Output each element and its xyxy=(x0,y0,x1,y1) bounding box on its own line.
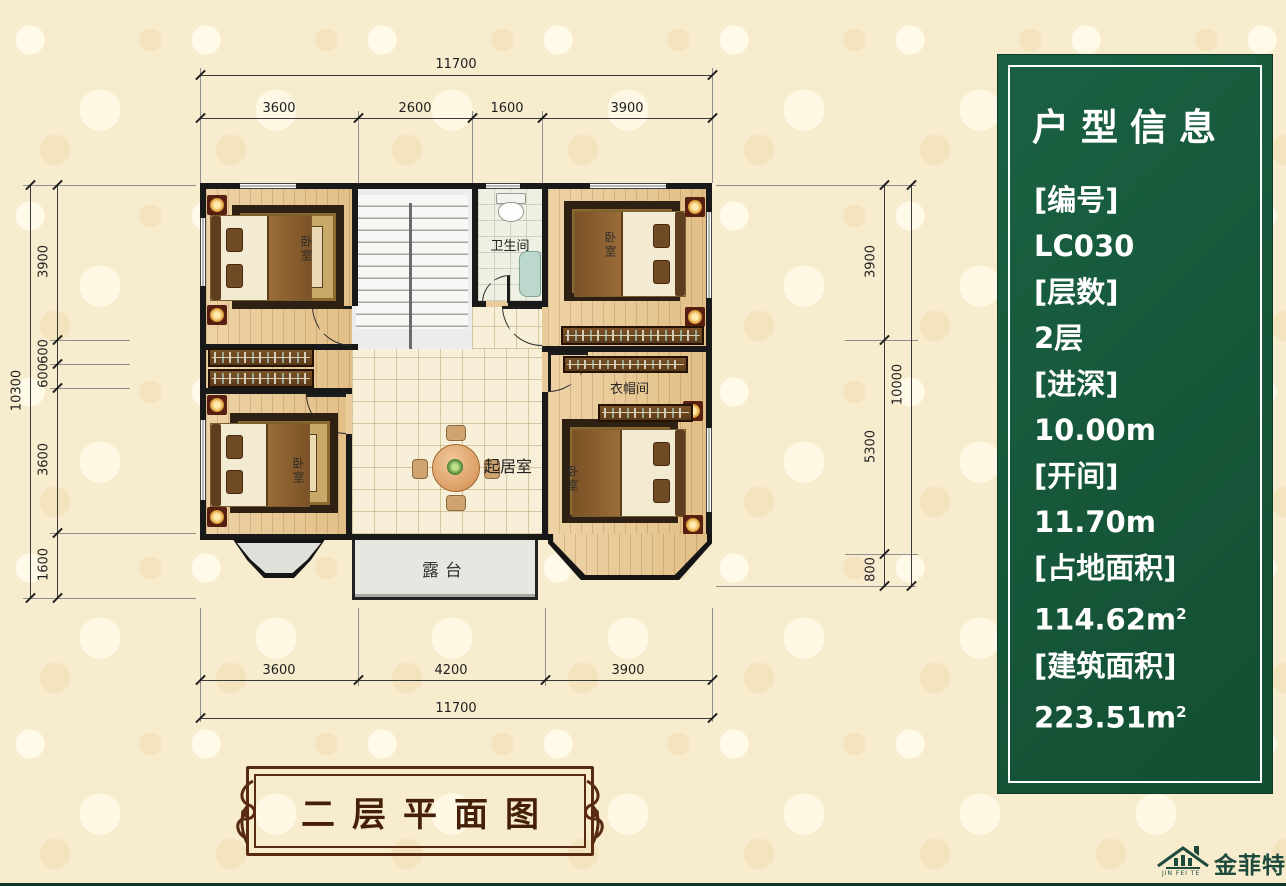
bed-bottomright xyxy=(572,429,686,517)
pillow xyxy=(226,435,243,459)
wall-lamp xyxy=(683,515,703,535)
wall-lamp xyxy=(207,195,227,215)
dim-extension xyxy=(542,111,543,183)
superscript: 2 xyxy=(1176,605,1186,623)
room-label-bedroom: 卧室 xyxy=(290,457,307,485)
window xyxy=(590,183,666,189)
pillow xyxy=(653,442,670,466)
dim-label: 11700 xyxy=(420,57,492,72)
plant-icon xyxy=(447,459,463,475)
info-text: [建筑面积] xyxy=(1034,649,1177,683)
info-panel-title: 户型信息 xyxy=(1032,97,1228,151)
wall xyxy=(542,392,548,534)
info-text: [占地面积] xyxy=(1034,551,1177,585)
pillow xyxy=(653,479,670,503)
dim-extension xyxy=(712,68,713,183)
info-text: 10.00m xyxy=(1034,413,1156,447)
dim-extension xyxy=(23,598,196,599)
poster: 卧室 卧室 卧室 卧室 卫生间 起居室 衣帽间 露台 11700 3600 26… xyxy=(0,0,1286,886)
dim-extension xyxy=(200,608,201,722)
stair-handrail xyxy=(409,203,412,349)
bay-window-outline xyxy=(232,538,326,578)
window xyxy=(706,428,712,512)
info-line: 2层 xyxy=(1034,315,1254,361)
title-banner: 二层平面图 xyxy=(246,766,594,856)
bed-topleft xyxy=(210,215,312,301)
chair xyxy=(446,495,466,511)
title-banner-frame: 二层平面图 xyxy=(254,774,586,848)
chair xyxy=(446,425,466,441)
wardrobe xyxy=(208,348,314,367)
title-banner-text: 二层平面图 xyxy=(284,787,556,836)
bed-topright xyxy=(574,211,686,297)
dim-extension xyxy=(50,340,130,341)
info-line: 114.62m2 xyxy=(1034,591,1254,643)
dim-extension xyxy=(716,586,916,587)
dim-extension xyxy=(50,364,130,365)
dim-extension xyxy=(50,533,196,534)
window xyxy=(706,212,712,298)
headboard xyxy=(211,216,221,300)
info-text: [编号] xyxy=(1034,183,1119,217)
headboard xyxy=(675,430,685,516)
room-label-bedroom: 卧室 xyxy=(602,231,619,259)
pillow xyxy=(226,264,243,288)
wall-lamp xyxy=(207,507,227,527)
pillow xyxy=(653,224,670,248)
wardrobe xyxy=(561,326,704,345)
info-text: 114.62m xyxy=(1034,603,1176,637)
dim-line-right-segments xyxy=(884,185,885,586)
info-line: [占地面积] xyxy=(1034,545,1254,591)
dim-extension xyxy=(472,111,473,183)
dim-extension xyxy=(200,68,201,183)
room-label-terrace: 露台 xyxy=(422,556,468,581)
dim-label: 3600 xyxy=(249,663,309,678)
dim-label: 11700 xyxy=(420,701,492,716)
house-roof-icon xyxy=(1156,842,1210,872)
dim-label: 5300 xyxy=(864,417,879,477)
toilet-icon xyxy=(498,202,524,222)
window xyxy=(200,420,206,500)
wall-lamp xyxy=(685,197,705,217)
room-label-bathroom: 卫生间 xyxy=(478,235,542,254)
dim-label: 3600 xyxy=(249,101,309,116)
superscript: 2 xyxy=(1176,703,1186,721)
info-line: 11.70m xyxy=(1034,499,1254,545)
wardrobe xyxy=(208,369,314,388)
pillow xyxy=(226,228,243,252)
room-label-cloakroom: 衣帽间 xyxy=(610,378,649,397)
window xyxy=(240,183,296,189)
dim-line-top-total xyxy=(200,75,712,76)
wall xyxy=(346,434,352,534)
info-text: [层数] xyxy=(1034,275,1119,309)
window xyxy=(486,183,520,189)
info-panel: 户型信息 [编号] LC030 [层数] 2层 [进深] 10.00m [开间]… xyxy=(998,55,1272,793)
info-text: LC030 xyxy=(1034,229,1134,263)
dim-extension xyxy=(50,388,130,389)
dim-label: 3900 xyxy=(598,663,658,678)
dim-extension xyxy=(358,111,359,183)
floor-plan: 卧室 卧室 卧室 卧室 卫生间 起居室 衣帽间 xyxy=(200,183,712,540)
info-text: [进深] xyxy=(1034,367,1119,401)
dim-extension xyxy=(716,185,916,186)
brand-subtext: JIN FEI TE xyxy=(1162,870,1200,877)
room-label-bedroom: 卧室 xyxy=(564,465,581,493)
dim-label: 10300 xyxy=(10,361,25,421)
headboard xyxy=(211,424,221,506)
info-text: 2层 xyxy=(1034,321,1083,355)
info-line: 10.00m xyxy=(1034,407,1254,453)
wall-lamp xyxy=(685,307,705,327)
brand-logo: JIN FEI TE 金菲特 xyxy=(1156,838,1284,884)
info-line: [进深] xyxy=(1034,361,1254,407)
info-line: 223.51m2 xyxy=(1034,689,1254,741)
wall-lamp xyxy=(207,305,227,325)
chair xyxy=(412,459,428,479)
pillow xyxy=(226,470,243,494)
room-label-bedroom: 卧室 xyxy=(298,235,315,263)
headboard xyxy=(675,212,685,296)
info-line: [开间] xyxy=(1034,453,1254,499)
room-label-living: 起居室 xyxy=(484,453,532,477)
info-text: 11.70m xyxy=(1034,505,1156,539)
staircase xyxy=(352,189,472,349)
info-panel-list: [编号] LC030 [层数] 2层 [进深] 10.00m [开间] 11.7… xyxy=(1034,177,1254,740)
dim-label: 3900 xyxy=(37,232,52,292)
info-text: 223.51m xyxy=(1034,700,1176,734)
bedroom-bay-floor xyxy=(553,534,707,575)
wall xyxy=(542,189,548,306)
dim-label: 4200 xyxy=(421,663,481,678)
dim-extension xyxy=(358,608,359,686)
dim-line-top-segments xyxy=(200,118,712,119)
dim-line-left-segments xyxy=(57,185,58,598)
dim-extension xyxy=(712,608,713,722)
wardrobe xyxy=(563,356,688,373)
info-text: [开间] xyxy=(1034,459,1119,493)
dim-label: 3900 xyxy=(597,101,657,116)
info-line: [建筑面积] xyxy=(1034,643,1254,689)
window xyxy=(200,218,206,286)
bathroom-vanity xyxy=(519,251,541,297)
dim-label: 2600 xyxy=(385,101,445,116)
dim-label: 3600 xyxy=(37,430,52,490)
info-line: LC030 xyxy=(1034,223,1254,269)
dim-line-bottom-segments xyxy=(200,680,712,681)
dim-extension xyxy=(545,608,546,686)
terrace: 露台 xyxy=(352,540,538,600)
info-line: [层数] xyxy=(1034,269,1254,315)
dim-line-bottom-total xyxy=(200,718,712,719)
dim-line-right-total xyxy=(911,185,912,586)
wall xyxy=(352,189,358,306)
bay-window-sill xyxy=(237,543,321,573)
dim-label: 1600 xyxy=(477,101,537,116)
dim-label: 800 xyxy=(864,540,879,600)
wardrobe xyxy=(598,404,693,422)
bedroom-bay-outline xyxy=(548,534,712,580)
pillow xyxy=(653,260,670,284)
dim-label: 1600 xyxy=(37,535,52,595)
dim-extension xyxy=(23,185,196,186)
info-line: [编号] xyxy=(1034,177,1254,223)
dim-label: 10000 xyxy=(891,355,906,415)
dim-line-left-total xyxy=(30,185,31,598)
wall-lamp xyxy=(207,395,227,415)
brand-name: 金菲特 xyxy=(1214,846,1286,880)
stair-steps xyxy=(356,195,468,329)
dim-label: 3900 xyxy=(864,232,879,292)
dim-label: 600 xyxy=(37,346,52,406)
